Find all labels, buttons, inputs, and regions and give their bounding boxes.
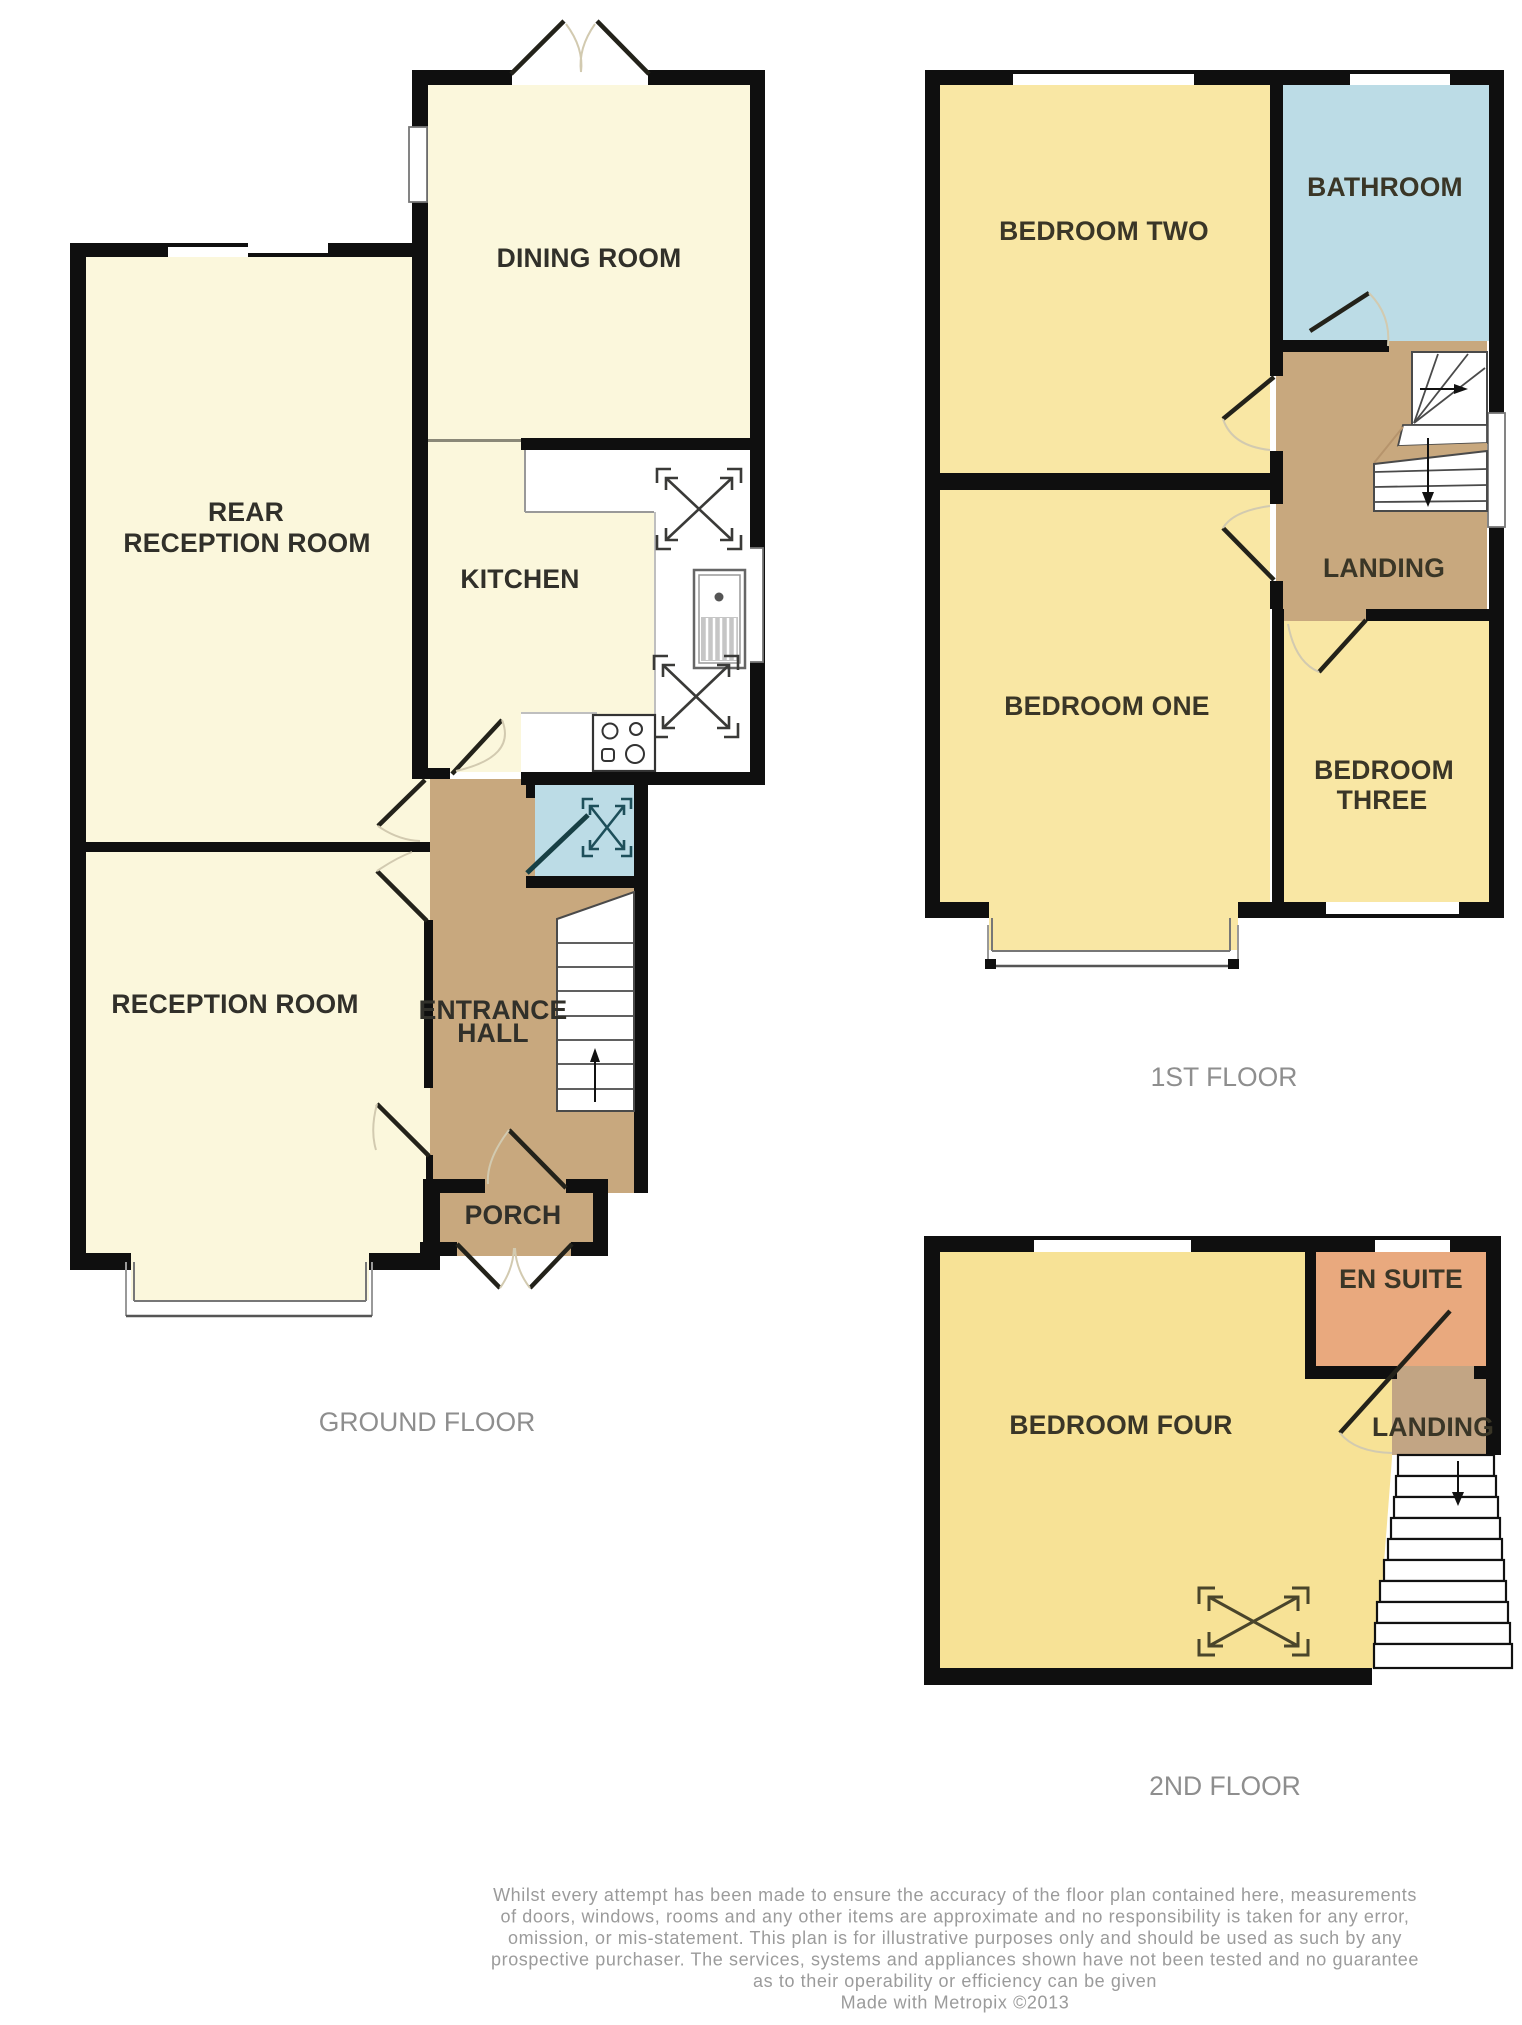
svg-text:LANDING: LANDING (1323, 553, 1445, 583)
svg-text:PORCH: PORCH (465, 1200, 562, 1230)
svg-text:BEDROOM: BEDROOM (1314, 755, 1454, 785)
svg-text:DINING ROOM: DINING ROOM (497, 243, 682, 273)
svg-text:KITCHEN: KITCHEN (460, 564, 579, 594)
svg-text:Whilst every attempt has been: Whilst every attempt has been made to en… (493, 1885, 1417, 1905)
svg-text:BATHROOM: BATHROOM (1307, 172, 1463, 202)
svg-text:REAR: REAR (208, 497, 284, 527)
svg-text:THREE: THREE (1337, 785, 1428, 815)
svg-text:EN SUITE: EN SUITE (1339, 1264, 1463, 1294)
svg-text:GROUND FLOOR: GROUND FLOOR (319, 1407, 535, 1437)
svg-text:BEDROOM TWO: BEDROOM TWO (999, 216, 1209, 246)
svg-text:BEDROOM ONE: BEDROOM ONE (1004, 691, 1209, 721)
svg-text:Made with Metropix ©2013: Made with Metropix ©2013 (841, 1993, 1070, 2013)
svg-text:RECEPTION ROOM: RECEPTION ROOM (123, 528, 370, 558)
svg-text:HALL: HALL (457, 1018, 528, 1048)
svg-text:as to their operability or eff: as to their operability or efficiency ca… (753, 1971, 1157, 1991)
svg-text:LANDING: LANDING (1372, 1412, 1494, 1442)
svg-text:2ND FLOOR: 2ND FLOOR (1149, 1771, 1301, 1801)
svg-text:of doors, windows, rooms and a: of doors, windows, rooms and any other i… (500, 1907, 1409, 1927)
svg-text:omission, or mis-statement. Th: omission, or mis-statement. This plan is… (508, 1928, 1402, 1948)
svg-text:BEDROOM FOUR: BEDROOM FOUR (1009, 1410, 1232, 1440)
svg-text:1ST FLOOR: 1ST FLOOR (1151, 1062, 1298, 1092)
svg-text:prospective purchaser. The ser: prospective purchaser. The services, sys… (491, 1950, 1419, 1970)
svg-text:RECEPTION ROOM: RECEPTION ROOM (111, 989, 358, 1019)
